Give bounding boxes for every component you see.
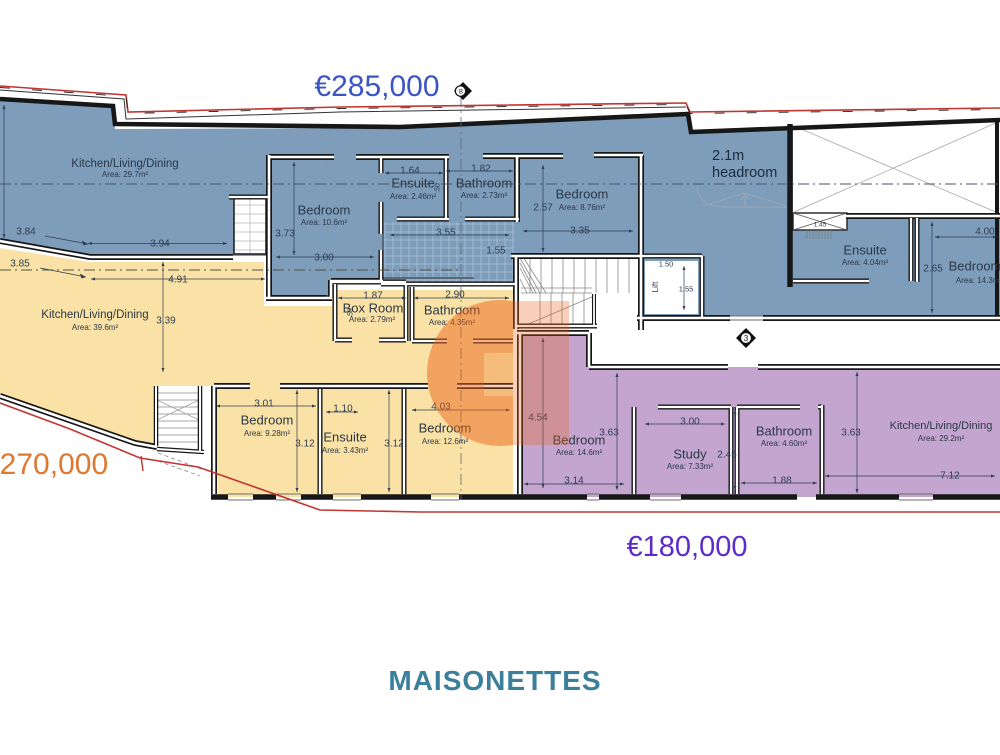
svg-text:Area: 14.6m²: Area: 14.6m²: [556, 448, 603, 457]
svg-text:3.94: 3.94: [150, 239, 170, 250]
svg-text:Area: 29.7m²: Area: 29.7m²: [102, 170, 149, 179]
svg-text:Ensuite: Ensuite: [843, 243, 886, 258]
svg-text:1.88: 1.88: [772, 476, 792, 487]
svg-text:.50: .50: [434, 183, 441, 193]
svg-text:4.91: 4.91: [168, 275, 188, 286]
svg-text:Bedroom: Bedroom: [556, 187, 609, 202]
svg-text:Area: 14.3m²: Area: 14.3m²: [956, 276, 1000, 285]
svg-text:€180,000: €180,000: [627, 531, 748, 563]
svg-text:Area: 9.28m²: Area: 9.28m²: [244, 429, 291, 438]
svg-text:4.00: 4.00: [975, 227, 995, 238]
svg-text:Ensuite: Ensuite: [323, 430, 366, 445]
svg-text:Area: 2.79m²: Area: 2.79m²: [349, 315, 396, 324]
svg-text:€270,000: €270,000: [0, 448, 108, 481]
svg-text:Area: 3.43m²: Area: 3.43m²: [322, 446, 369, 455]
svg-text:Kitchen/Living/Dining: Kitchen/Living/Dining: [41, 309, 148, 321]
svg-text:Area: 29.2m²: Area: 29.2m²: [918, 434, 965, 443]
svg-text:2.1m: 2.1m: [712, 148, 744, 164]
svg-text:Area: 4.60m²: Area: 4.60m²: [761, 439, 808, 448]
svg-text:Bedroom: Bedroom: [298, 203, 351, 218]
svg-text:2.90: 2.90: [445, 290, 465, 301]
svg-text:3: 3: [744, 334, 749, 343]
svg-text:Kitchen/Living/Dining: Kitchen/Living/Dining: [890, 420, 993, 432]
svg-text:Area: 12.6m²: Area: 12.6m²: [422, 437, 469, 446]
svg-text:headroom: headroom: [712, 165, 777, 181]
svg-text:3.39: 3.39: [156, 316, 176, 327]
svg-text:MAISONETTES: MAISONETTES: [388, 665, 601, 696]
svg-text:3.01: 3.01: [254, 399, 274, 410]
svg-text:7.12: 7.12: [940, 471, 960, 482]
svg-text:Area: 4.04m²: Area: 4.04m²: [842, 258, 889, 267]
svg-text:3.00: 3.00: [680, 417, 700, 428]
svg-text:1.50: 1.50: [659, 260, 674, 269]
svg-text:1.55: 1.55: [486, 246, 506, 257]
svg-text:Area: 39.6m²: Area: 39.6m²: [72, 323, 119, 332]
svg-text:3.14: 3.14: [564, 476, 584, 487]
svg-text:Kitchen/Living/Dining: Kitchen/Living/Dining: [71, 158, 178, 170]
svg-text:Area: 2.46m²: Area: 2.46m²: [390, 192, 437, 201]
svg-text:Study: Study: [673, 447, 707, 462]
svg-text:1.82: 1.82: [471, 164, 491, 175]
svg-text:.50: .50: [347, 308, 354, 318]
svg-text:Area: 7.33m²: Area: 7.33m²: [667, 462, 714, 471]
svg-text:Bedroom: Bedroom: [949, 259, 1000, 274]
svg-text:3.84: 3.84: [16, 227, 36, 238]
svg-text:3.00: 3.00: [314, 253, 334, 264]
svg-text:B: B: [459, 90, 463, 96]
svg-text:3.63: 3.63: [599, 428, 619, 439]
svg-text:Area: 8.76m²: Area: 8.76m²: [559, 203, 606, 212]
svg-text:3.55: 3.55: [436, 228, 456, 239]
svg-text:Bedroom: Bedroom: [241, 413, 294, 428]
svg-text:1.45: 1.45: [814, 221, 827, 228]
svg-text:1.10: 1.10: [333, 404, 353, 415]
svg-text:Bathroom: Bathroom: [456, 176, 512, 191]
svg-text:3.85: 3.85: [10, 259, 30, 270]
svg-text:3.73: 3.73: [275, 229, 295, 240]
svg-text:Bathroom: Bathroom: [756, 424, 812, 439]
svg-text:€285,000: €285,000: [314, 70, 439, 103]
svg-text:3.63: 3.63: [841, 428, 861, 439]
svg-text:1.55: 1.55: [679, 285, 694, 294]
svg-text:3.35: 3.35: [570, 226, 590, 237]
svg-text:Area: 2.73m²: Area: 2.73m²: [461, 191, 508, 200]
svg-text:Area: 10.6m²: Area: 10.6m²: [301, 218, 348, 227]
svg-text:Ensuite: Ensuite: [391, 176, 434, 191]
svg-text:2.65: 2.65: [923, 264, 943, 275]
svg-text:2.57: 2.57: [533, 203, 553, 214]
svg-text:2.45: 2.45: [717, 450, 737, 461]
svg-text:Lift: Lift: [651, 281, 660, 292]
svg-text:3.12: 3.12: [384, 439, 404, 450]
svg-text:3.12: 3.12: [295, 439, 315, 450]
